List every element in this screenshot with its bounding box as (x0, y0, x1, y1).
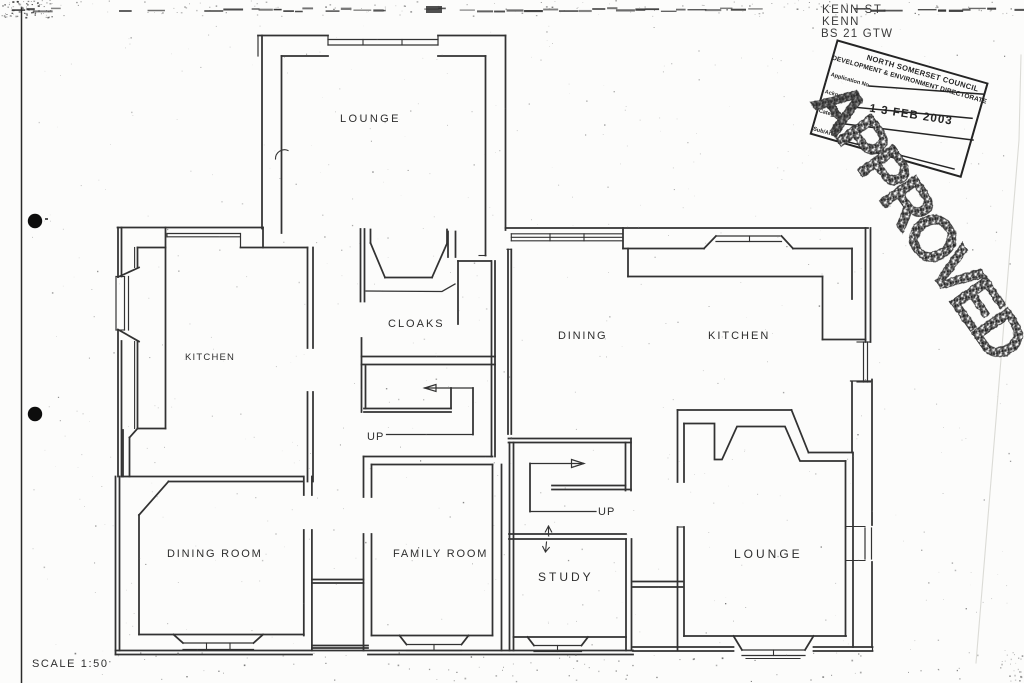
svg-text:UP: UP (367, 431, 384, 443)
svg-text:STUDY: STUDY (538, 570, 594, 584)
svg-text:FAMILY ROOM: FAMILY ROOM (393, 548, 488, 560)
svg-text:LOUNGE: LOUNGE (340, 113, 401, 125)
svg-text:DINING ROOM: DINING ROOM (167, 548, 263, 560)
svg-text:KITCHEN: KITCHEN (185, 352, 235, 363)
svg-text:SCALE 1:50: SCALE 1:50 (32, 658, 109, 670)
svg-text:UP: UP (598, 506, 615, 518)
svg-text:KITCHEN: KITCHEN (708, 330, 770, 342)
svg-text:DINING: DINING (558, 330, 607, 342)
svg-text:KENN ST: KENN ST (822, 4, 882, 16)
svg-text:CLOAKS: CLOAKS (388, 318, 445, 330)
svg-text:LOUNGE: LOUNGE (734, 547, 803, 561)
svg-text:KENN: KENN (822, 16, 860, 28)
svg-text:BS 21 GTW: BS 21 GTW (821, 28, 893, 40)
